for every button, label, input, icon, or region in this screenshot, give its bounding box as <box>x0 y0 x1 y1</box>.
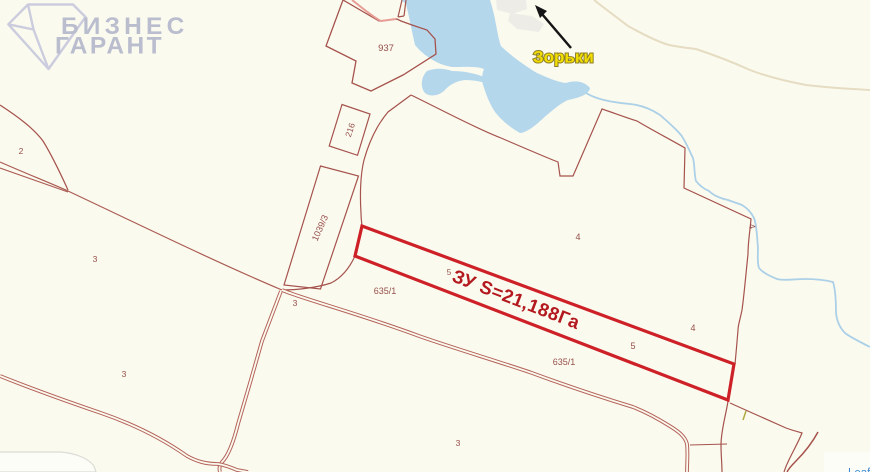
svg-text:635/1: 635/1 <box>374 286 397 296</box>
svg-text:635/1: 635/1 <box>553 357 576 367</box>
svg-text:3: 3 <box>293 298 298 308</box>
svg-text:5: 5 <box>630 341 635 351</box>
svg-text:5: 5 <box>447 268 452 277</box>
svg-text:ГАРАНТ: ГАРАНТ <box>55 33 164 60</box>
svg-text:3: 3 <box>93 254 98 264</box>
svg-text:2: 2 <box>19 146 24 156</box>
svg-text:3: 3 <box>122 369 127 379</box>
svg-text:4: 4 <box>575 232 580 242</box>
svg-text:4: 4 <box>690 323 695 333</box>
svg-text:3: 3 <box>456 438 461 448</box>
svg-text:Зорьки: Зорьки <box>533 48 594 67</box>
svg-text:937: 937 <box>378 43 394 54</box>
svg-text:Leaflet: Leaflet <box>848 468 870 472</box>
